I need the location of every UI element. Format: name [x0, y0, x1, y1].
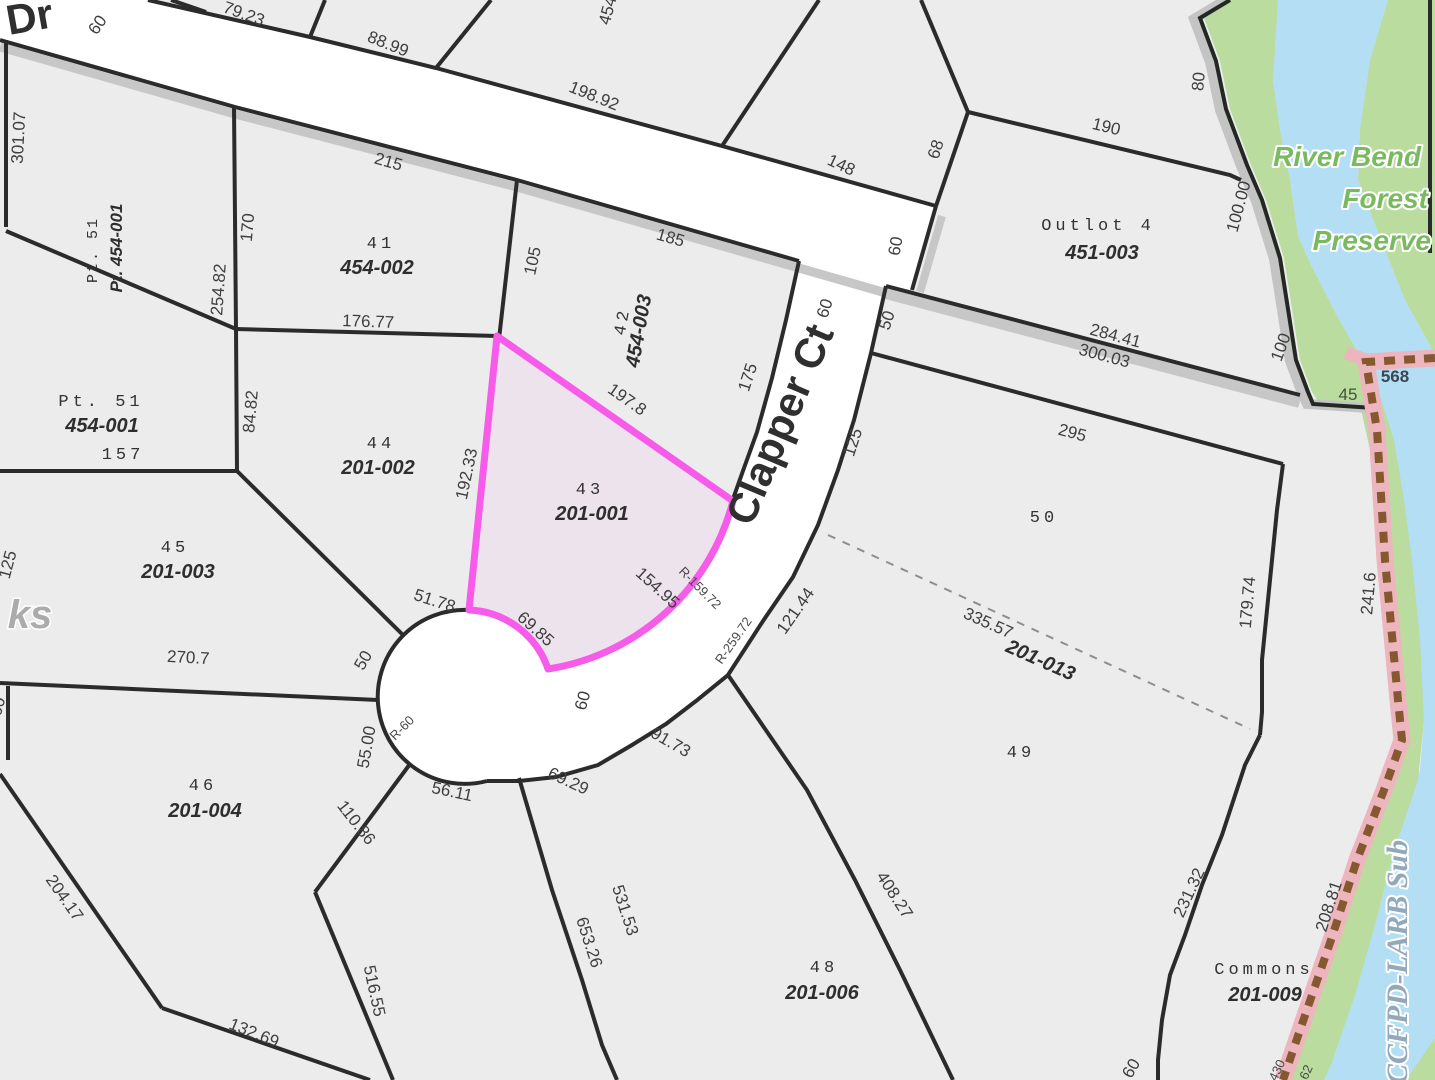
svg-text:241.6: 241.6 — [1357, 572, 1380, 616]
svg-text:CCFPD-LARB Sub: CCFPD-LARB Sub — [1381, 840, 1414, 1080]
svg-text:River Bend: River Bend — [1273, 141, 1422, 172]
svg-text:60: 60 — [885, 235, 907, 257]
svg-text:Pt. 454-001: Pt. 454-001 — [107, 204, 126, 293]
svg-text:568: 568 — [1381, 367, 1409, 386]
svg-text:454-002: 454-002 — [339, 257, 413, 279]
svg-text:44: 44 — [367, 435, 395, 454]
svg-text:Commons: Commons — [1214, 961, 1313, 980]
svg-text:Outlot 4: Outlot 4 — [1041, 217, 1155, 236]
svg-text:84.82: 84.82 — [239, 390, 262, 434]
svg-text:201-002: 201-002 — [340, 457, 414, 479]
svg-text:451-003: 451-003 — [1064, 242, 1138, 264]
svg-text:45: 45 — [161, 539, 189, 558]
svg-text:201-001: 201-001 — [554, 503, 628, 525]
svg-text:254.82: 254.82 — [207, 263, 230, 316]
svg-text:Pt. 51: Pt. 51 — [85, 217, 102, 283]
svg-text:Pt. 51: Pt. 51 — [58, 393, 143, 412]
svg-text:201-006: 201-006 — [784, 982, 859, 1004]
svg-text:43: 43 — [576, 481, 604, 500]
svg-text:201-004: 201-004 — [167, 800, 241, 822]
svg-text:157: 157 — [102, 446, 145, 465]
svg-text:170: 170 — [237, 213, 258, 243]
svg-text:301.07: 301.07 — [8, 111, 30, 164]
svg-text:201-009: 201-009 — [1227, 984, 1302, 1006]
svg-text:50: 50 — [1030, 509, 1058, 528]
svg-text:176.77: 176.77 — [342, 311, 395, 332]
svg-text:201-003: 201-003 — [140, 561, 214, 583]
svg-text:270.7: 270.7 — [167, 647, 210, 668]
svg-text:49: 49 — [1007, 744, 1035, 763]
svg-text:80: 80 — [1188, 71, 1209, 92]
svg-text:Forest: Forest — [1342, 183, 1429, 214]
svg-text:41: 41 — [367, 235, 395, 254]
svg-text:46: 46 — [189, 777, 217, 796]
svg-text:45: 45 — [1339, 385, 1358, 404]
svg-text:454-001: 454-001 — [64, 415, 138, 437]
svg-text:ks: ks — [8, 593, 53, 637]
svg-text:48: 48 — [810, 959, 838, 978]
svg-text:Preserve: Preserve — [1313, 225, 1431, 256]
